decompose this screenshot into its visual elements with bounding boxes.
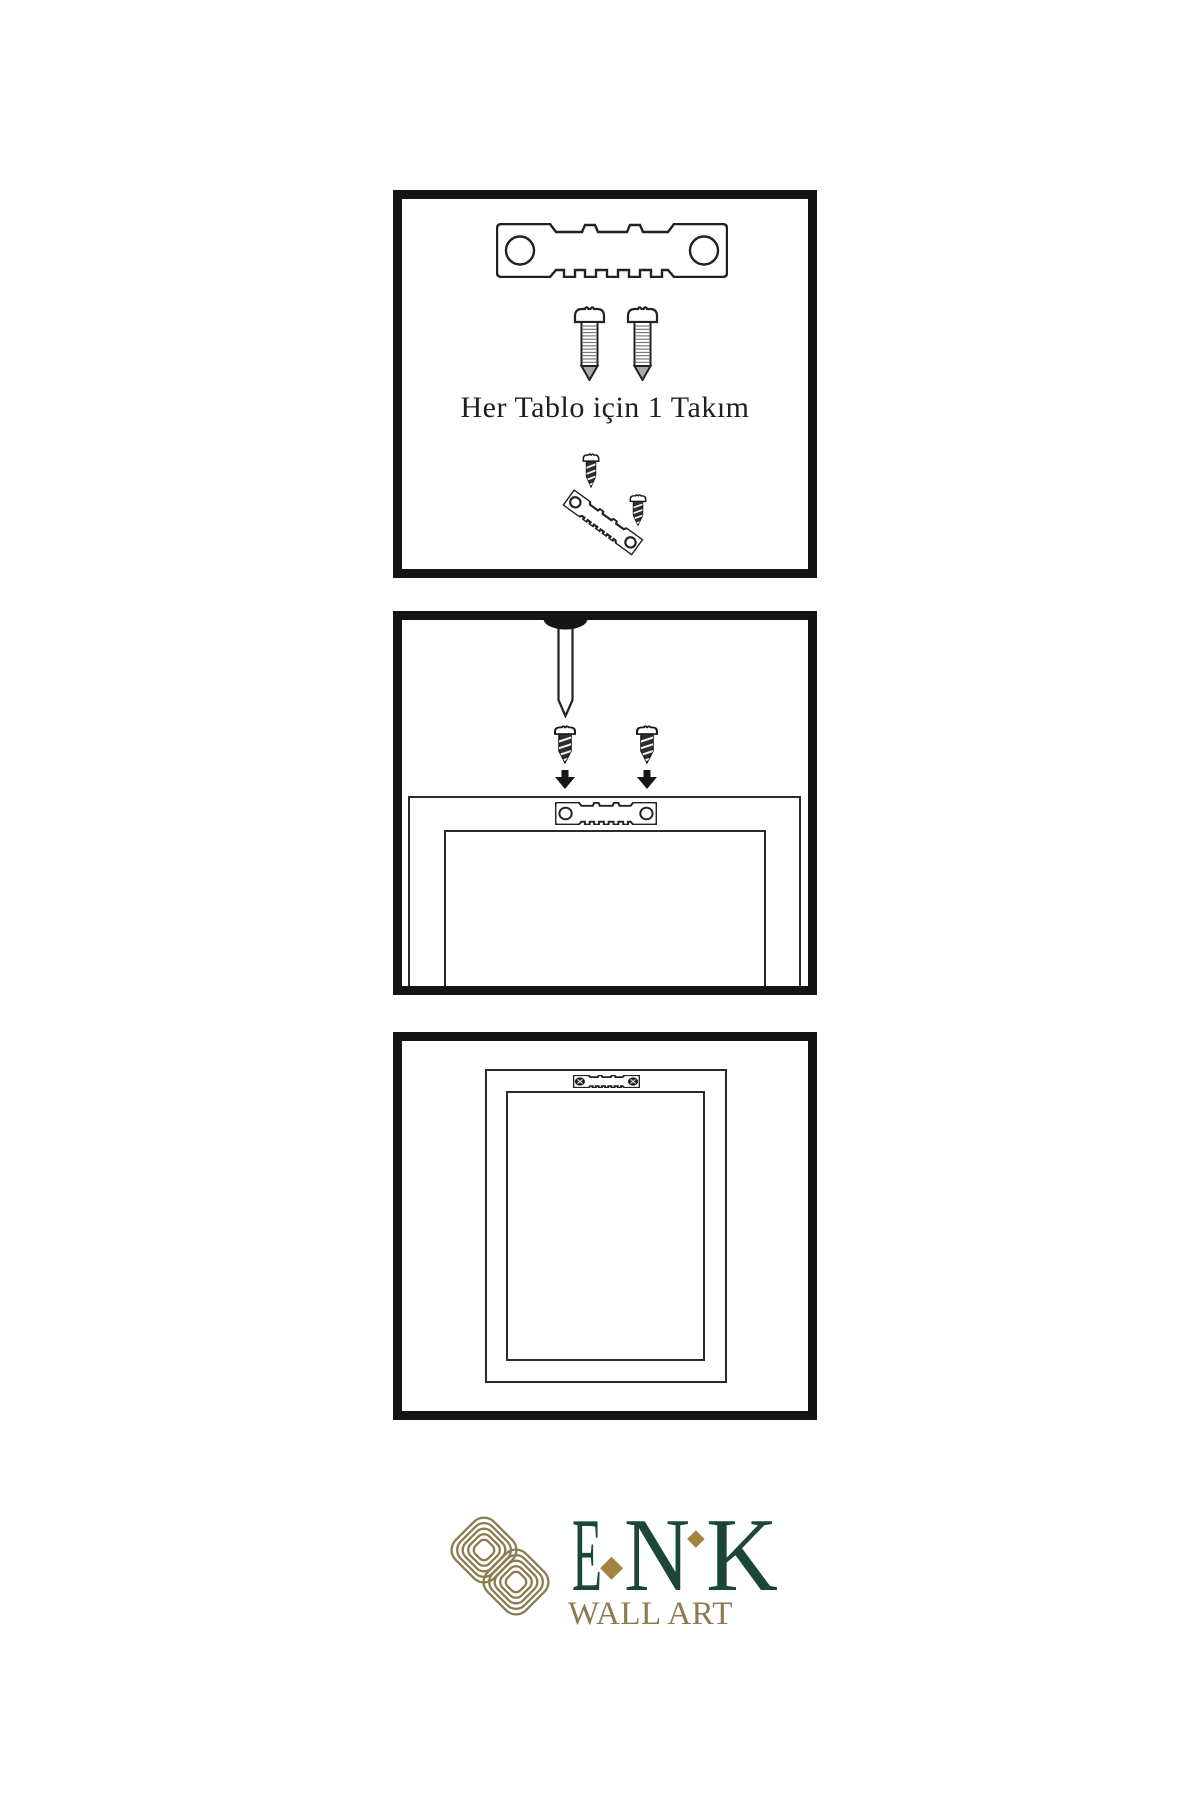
screw-dark-icon — [628, 493, 648, 528]
page: Her Tablo için 1 Takım — [0, 0, 1200, 1800]
down-arrow-icon — [554, 770, 576, 789]
panel-step2 — [393, 611, 817, 995]
brand-wordmark: E N K ◆ ◆ — [566, 1514, 781, 1598]
screw-icon — [625, 305, 660, 381]
hanger-screw-head-icon — [629, 1079, 636, 1085]
frame-back-inner — [444, 830, 766, 986]
mounted-hanger-icon — [573, 1075, 640, 1088]
wall-nail-icon — [543, 618, 588, 718]
screw-dark-icon — [552, 724, 578, 766]
diamond-icon: ◆ — [687, 1525, 705, 1551]
hung-frame-inner — [506, 1091, 705, 1361]
sawtooth-hanger-icon — [496, 223, 728, 278]
knot-logo-icon — [440, 1502, 560, 1630]
brand-subtitle: WALL ART — [568, 1596, 733, 1633]
down-arrow-icon — [636, 770, 658, 789]
brand-letter-k: K — [706, 1514, 778, 1598]
panel-step1: Her Tablo için 1 Takım — [393, 190, 817, 578]
screw-icon — [572, 305, 607, 381]
panel-step3 — [393, 1032, 817, 1420]
hanger-screw-head-icon — [576, 1079, 583, 1085]
brand-letter-n: N — [624, 1514, 690, 1598]
diamond-icon: ◆ — [600, 1549, 623, 1584]
sawtooth-hanger-small-icon — [555, 802, 657, 825]
screw-dark-icon — [634, 724, 660, 766]
panel1-caption: Her Tablo için 1 Takım — [402, 391, 808, 425]
brand-letter-e: E — [572, 1514, 602, 1598]
screw-dark-icon — [581, 452, 601, 490]
